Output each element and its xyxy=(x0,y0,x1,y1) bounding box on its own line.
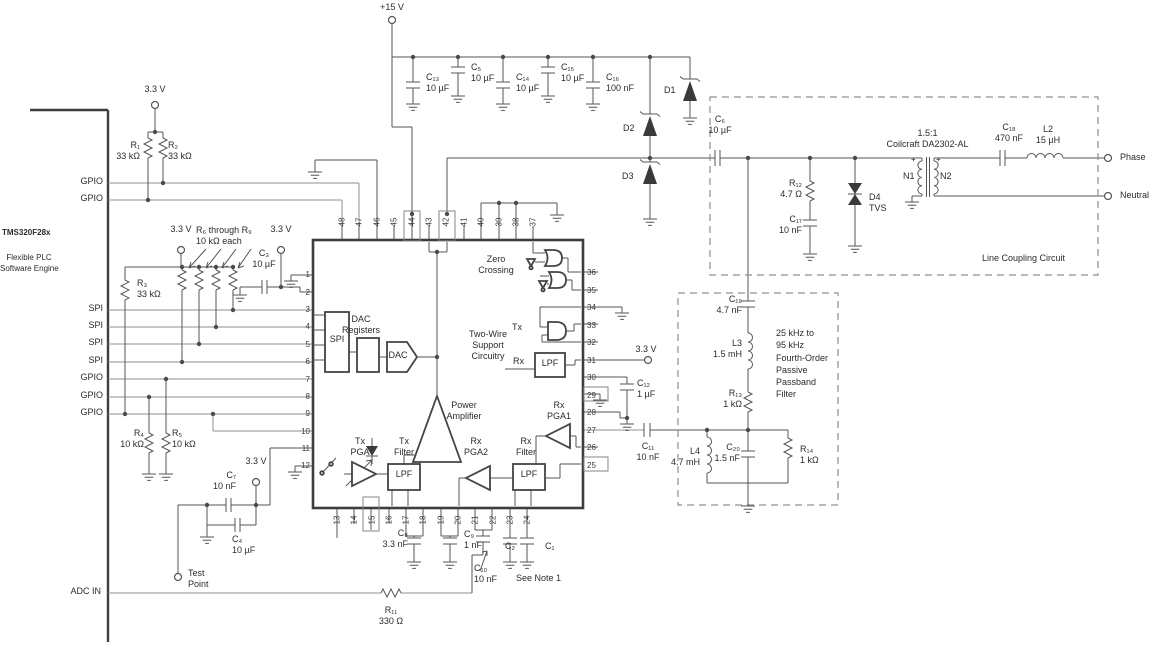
test-point-label: TestPoint xyxy=(188,568,209,590)
n2-polarity-icon: + xyxy=(936,154,941,165)
list-item: 9 xyxy=(297,405,310,422)
list-item: 22 xyxy=(484,511,500,528)
v33-label: 3.3 V xyxy=(137,84,173,95)
dac-registers-label: DACRegisters xyxy=(338,314,384,336)
d3-diode-icon xyxy=(643,164,657,184)
power-amplifier-label: PowerAmplifier xyxy=(439,400,489,422)
list-item: 27 xyxy=(587,422,603,440)
gpio-port-label: GPIO xyxy=(70,390,103,401)
chip-pins-top: 484746454443424140393837 xyxy=(333,214,542,230)
r2-label: R₂33 kΩ xyxy=(168,140,192,162)
lpf-block-label: LPF xyxy=(388,469,420,480)
list-item: 42 xyxy=(438,213,454,230)
rx-filter-label: RxFilter xyxy=(508,436,544,458)
gpio-port-label: GPIO xyxy=(70,176,103,187)
list-item: Filter xyxy=(776,388,840,400)
d2-diode-icon xyxy=(643,116,657,136)
list-item: 23 xyxy=(502,511,518,528)
list-item: 25 xyxy=(587,457,603,475)
line-coupling-label: Line Coupling Circuit xyxy=(982,253,1065,264)
d2-label: D2 xyxy=(623,123,635,134)
phase-terminal xyxy=(1105,155,1112,162)
d3-label: D3 xyxy=(622,171,634,182)
r11-label: R₁₁330 Ω xyxy=(369,605,413,627)
list-item: 26 xyxy=(587,439,603,457)
n2-label: N2 xyxy=(940,171,952,182)
list-item: 28 xyxy=(587,404,603,422)
list-item: 48 xyxy=(334,213,350,230)
list-item: 14 xyxy=(346,511,362,528)
c11-label: C₁₁10 nF xyxy=(628,441,668,463)
r12-label: R₁₂4.7 Ω xyxy=(770,178,802,200)
list-item: 43 xyxy=(421,213,437,230)
c6-label: C₆10 µF xyxy=(702,114,738,136)
list-item: 20 xyxy=(450,511,466,528)
plus15v-terminal xyxy=(389,17,396,24)
list-item: Rx xyxy=(508,436,544,447)
list-item: Rx xyxy=(458,436,494,447)
chip-pins-left: 123456789101112 xyxy=(297,266,310,475)
list-item: 37 xyxy=(525,213,541,230)
c8-label: C₈3.3 nF xyxy=(378,528,408,550)
c4-label: C₄10 µF xyxy=(232,534,255,556)
c13-label: C₁₃10 µF xyxy=(426,72,449,94)
d4-tvs-icon xyxy=(848,194,862,205)
v33-label: 3.3 V xyxy=(263,224,299,235)
zero-crossing-gate-2 xyxy=(549,272,566,288)
list-item: 95 kHz xyxy=(776,339,840,351)
list-item: Test xyxy=(188,568,209,579)
gpio-port-label: GPIO xyxy=(70,407,103,418)
list-item: 44 xyxy=(403,213,419,230)
c18-label: C₁₈470 nF xyxy=(990,122,1028,144)
list-item: 29 xyxy=(587,387,603,405)
c20-label: C₂₀1.5 nF xyxy=(710,442,740,464)
d1-diode-icon xyxy=(683,81,697,101)
c1-label: C₁ xyxy=(545,541,555,552)
list-item: Fourth-Order xyxy=(776,352,840,364)
list-item: 36 xyxy=(587,264,603,282)
two-wire-and-gate xyxy=(548,322,566,340)
c16-label: C₁₆100 nF xyxy=(606,72,634,94)
chip-pins-bottom: 131415161718192021222324 xyxy=(328,512,536,528)
list-item: 19 xyxy=(432,511,448,528)
rx-pga2-label: RxPGA2 xyxy=(458,436,494,458)
n1-label: N1 xyxy=(903,171,915,182)
plus15v-label: +15 V xyxy=(374,2,410,13)
list-item: Zero xyxy=(472,254,520,265)
transformer-label: 1.5:1Coilcraft DA2302-AL xyxy=(870,128,985,150)
dac-registers-block xyxy=(357,338,379,372)
v33-terminal xyxy=(152,102,159,109)
list-item: 31 xyxy=(587,352,603,370)
list-item: Tx xyxy=(386,436,422,447)
c2-label: C₂ xyxy=(505,541,515,552)
lpf-block-label: LPF xyxy=(535,358,565,369)
v33-terminal xyxy=(253,479,260,486)
list-item: Point xyxy=(188,579,209,590)
list-item: 24 xyxy=(519,511,535,528)
adc-in-port-label: ADC IN xyxy=(53,586,101,597)
r3-label: R₃33 kΩ xyxy=(137,278,161,300)
c7-label: C₇10 nF xyxy=(204,470,236,492)
l3-label: L31.5 mH xyxy=(704,338,742,360)
rx-label: Rx xyxy=(513,356,524,367)
l2-label: L215 µH xyxy=(1029,124,1067,146)
r1-label: R₁33 kΩ xyxy=(102,140,140,162)
list-item: 1 xyxy=(297,266,310,283)
list-item: 25 kHz to xyxy=(776,327,840,339)
rx-pga1-label: RxPGA1 xyxy=(540,400,578,422)
list-item: 47 xyxy=(351,213,367,230)
r6-r9-label: R₆ through R₉10 kΩ each xyxy=(196,225,252,247)
list-item: Amplifier xyxy=(439,411,489,422)
list-item: 38 xyxy=(508,213,524,230)
list-item: Registers xyxy=(338,325,384,336)
list-item: 4 xyxy=(297,318,310,335)
list-item: Tx xyxy=(344,436,376,447)
list-item: 16 xyxy=(381,511,397,528)
spi-port-label: SPI xyxy=(75,337,103,348)
d4-tvs-icon xyxy=(848,183,862,194)
tx-filter-label: TxFilter xyxy=(386,436,422,458)
list-item: 46 xyxy=(368,213,384,230)
list-item: Circuitry xyxy=(462,351,514,362)
switch-contact-icon xyxy=(320,471,324,475)
c10-label: C₁₀10 nF xyxy=(474,563,497,585)
list-item: PGA1 xyxy=(540,411,578,422)
zero-crossing-gate-1 xyxy=(545,250,562,266)
list-item: Software Engine xyxy=(0,263,58,274)
n1-polarity-icon: + xyxy=(911,154,916,165)
list-item: Rx xyxy=(540,400,578,411)
terminals xyxy=(152,17,1112,581)
neutral-terminal xyxy=(1105,193,1112,200)
d4-label: D4TVS xyxy=(869,192,887,214)
tx-pga-label: TxPGA xyxy=(344,436,376,458)
list-item: 33 xyxy=(587,317,603,335)
list-item: Passive xyxy=(776,364,840,376)
gpio-port-label: GPIO xyxy=(70,193,103,204)
list-item: 39 xyxy=(490,213,506,230)
list-item: 45 xyxy=(386,213,402,230)
inverter-bubble-icon xyxy=(541,288,544,291)
list-item: 32 xyxy=(587,334,603,352)
v33-terminal xyxy=(178,247,185,254)
list-item: 41 xyxy=(455,213,471,230)
inverter-bubble-icon xyxy=(529,266,532,269)
test-point-terminal xyxy=(175,574,182,581)
c3-label: C₃10 µF xyxy=(248,248,280,270)
schematic-canvas xyxy=(0,0,1153,648)
list-item: 8 xyxy=(297,388,310,405)
list-item: 30 xyxy=(587,369,603,387)
list-item: PGA xyxy=(344,447,376,458)
phase-label: Phase xyxy=(1120,152,1146,163)
list-item: 11 xyxy=(297,440,310,457)
neutral-label: Neutral xyxy=(1120,190,1149,201)
list-item: 34 xyxy=(587,299,603,317)
see-note-label: See Note 1 xyxy=(516,573,561,584)
c9-label: C₉1 nF xyxy=(464,529,482,551)
v33-terminal xyxy=(645,357,652,364)
list-item: 12 xyxy=(297,457,310,474)
filter-note: 25 kHz to95 kHzFourth-OrderPassivePassba… xyxy=(776,327,840,401)
v33-label: 3.3 V xyxy=(238,456,274,467)
c19-label: C₁₉4.7 nF xyxy=(704,294,742,316)
gpio-port-label: GPIO xyxy=(70,372,103,383)
list-item: 17 xyxy=(398,511,414,528)
tx-label: Tx xyxy=(512,322,522,333)
list-item: 10 xyxy=(297,423,310,440)
v33-label: 3.3 V xyxy=(163,224,199,235)
diode-symbols xyxy=(643,81,862,205)
list-item: 6 xyxy=(297,353,310,370)
c12-label: C₁₂1 µF xyxy=(637,378,655,400)
list-item: Crossing xyxy=(472,265,520,276)
chip-pins-right: 363534333231302928272625 xyxy=(587,264,603,474)
list-item: DAC xyxy=(338,314,384,325)
list-item: 18 xyxy=(415,511,431,528)
spi-port-label: SPI xyxy=(75,355,103,366)
list-item: Support xyxy=(462,340,514,351)
list-item: 13 xyxy=(329,511,345,528)
spi-port-label: SPI xyxy=(75,320,103,331)
list-item: 5 xyxy=(297,336,310,353)
r5-label: R₅10 kΩ xyxy=(172,428,196,450)
c5-label: C₅10 µF xyxy=(471,62,494,84)
switch-contact-icon xyxy=(329,462,333,466)
c17-label: C₁₇10 nF xyxy=(770,214,802,236)
spi-port-label: SPI xyxy=(75,303,103,314)
list-item: 7 xyxy=(297,370,310,387)
device-subtitle: Flexible PLCSoftware Engine xyxy=(0,252,58,274)
r13-label: R₁₃1 kΩ xyxy=(704,388,742,410)
list-item: 15 xyxy=(363,511,379,528)
c15-label: C₁₅10 µF xyxy=(561,62,584,84)
r4-label: R₄10 kΩ xyxy=(104,428,144,450)
lpf-block-label: LPF xyxy=(513,469,545,480)
list-item: Filter xyxy=(386,447,422,458)
device-label: TMS320F28x xyxy=(2,227,50,238)
list-item: Filter xyxy=(508,447,544,458)
list-item: PGA2 xyxy=(458,447,494,458)
two-wire-label: Two-WireSupportCircuitry xyxy=(462,329,514,362)
list-item: 40 xyxy=(473,213,489,230)
list-item: 35 xyxy=(587,282,603,300)
zero-crossing-label: ZeroCrossing xyxy=(472,254,520,276)
v33-label: 3.3 V xyxy=(628,344,664,355)
d1-label: D1 xyxy=(664,85,676,96)
c14-label: C₁₄10 µF xyxy=(516,72,539,94)
list-item: 21 xyxy=(467,511,483,528)
schematic-page: +15 V C₁₃10 µF C₅10 µF C₁₄10 µF C₁₅10 µF… xyxy=(0,0,1153,648)
list-item: Passband xyxy=(776,376,840,388)
list-item: 2 xyxy=(297,283,310,300)
list-item: Power xyxy=(439,400,489,411)
list-item: Flexible PLC xyxy=(0,252,58,263)
r14-label: R₁₄1 kΩ xyxy=(800,444,819,466)
list-item: 3 xyxy=(297,301,310,318)
list-item: Two-Wire xyxy=(462,329,514,340)
dac-block-label: DAC xyxy=(385,350,411,361)
